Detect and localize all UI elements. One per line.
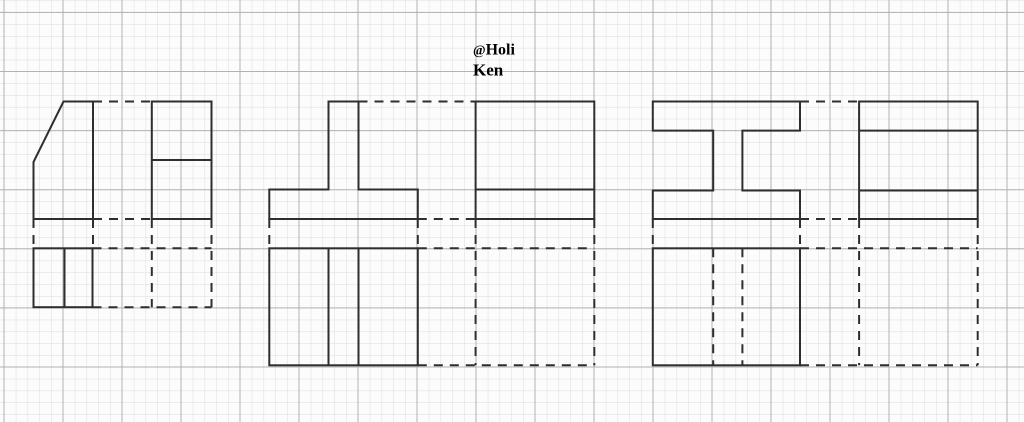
svg-text:@Holi: @Holi [473,41,515,58]
svg-text:Ken: Ken [473,60,504,79]
